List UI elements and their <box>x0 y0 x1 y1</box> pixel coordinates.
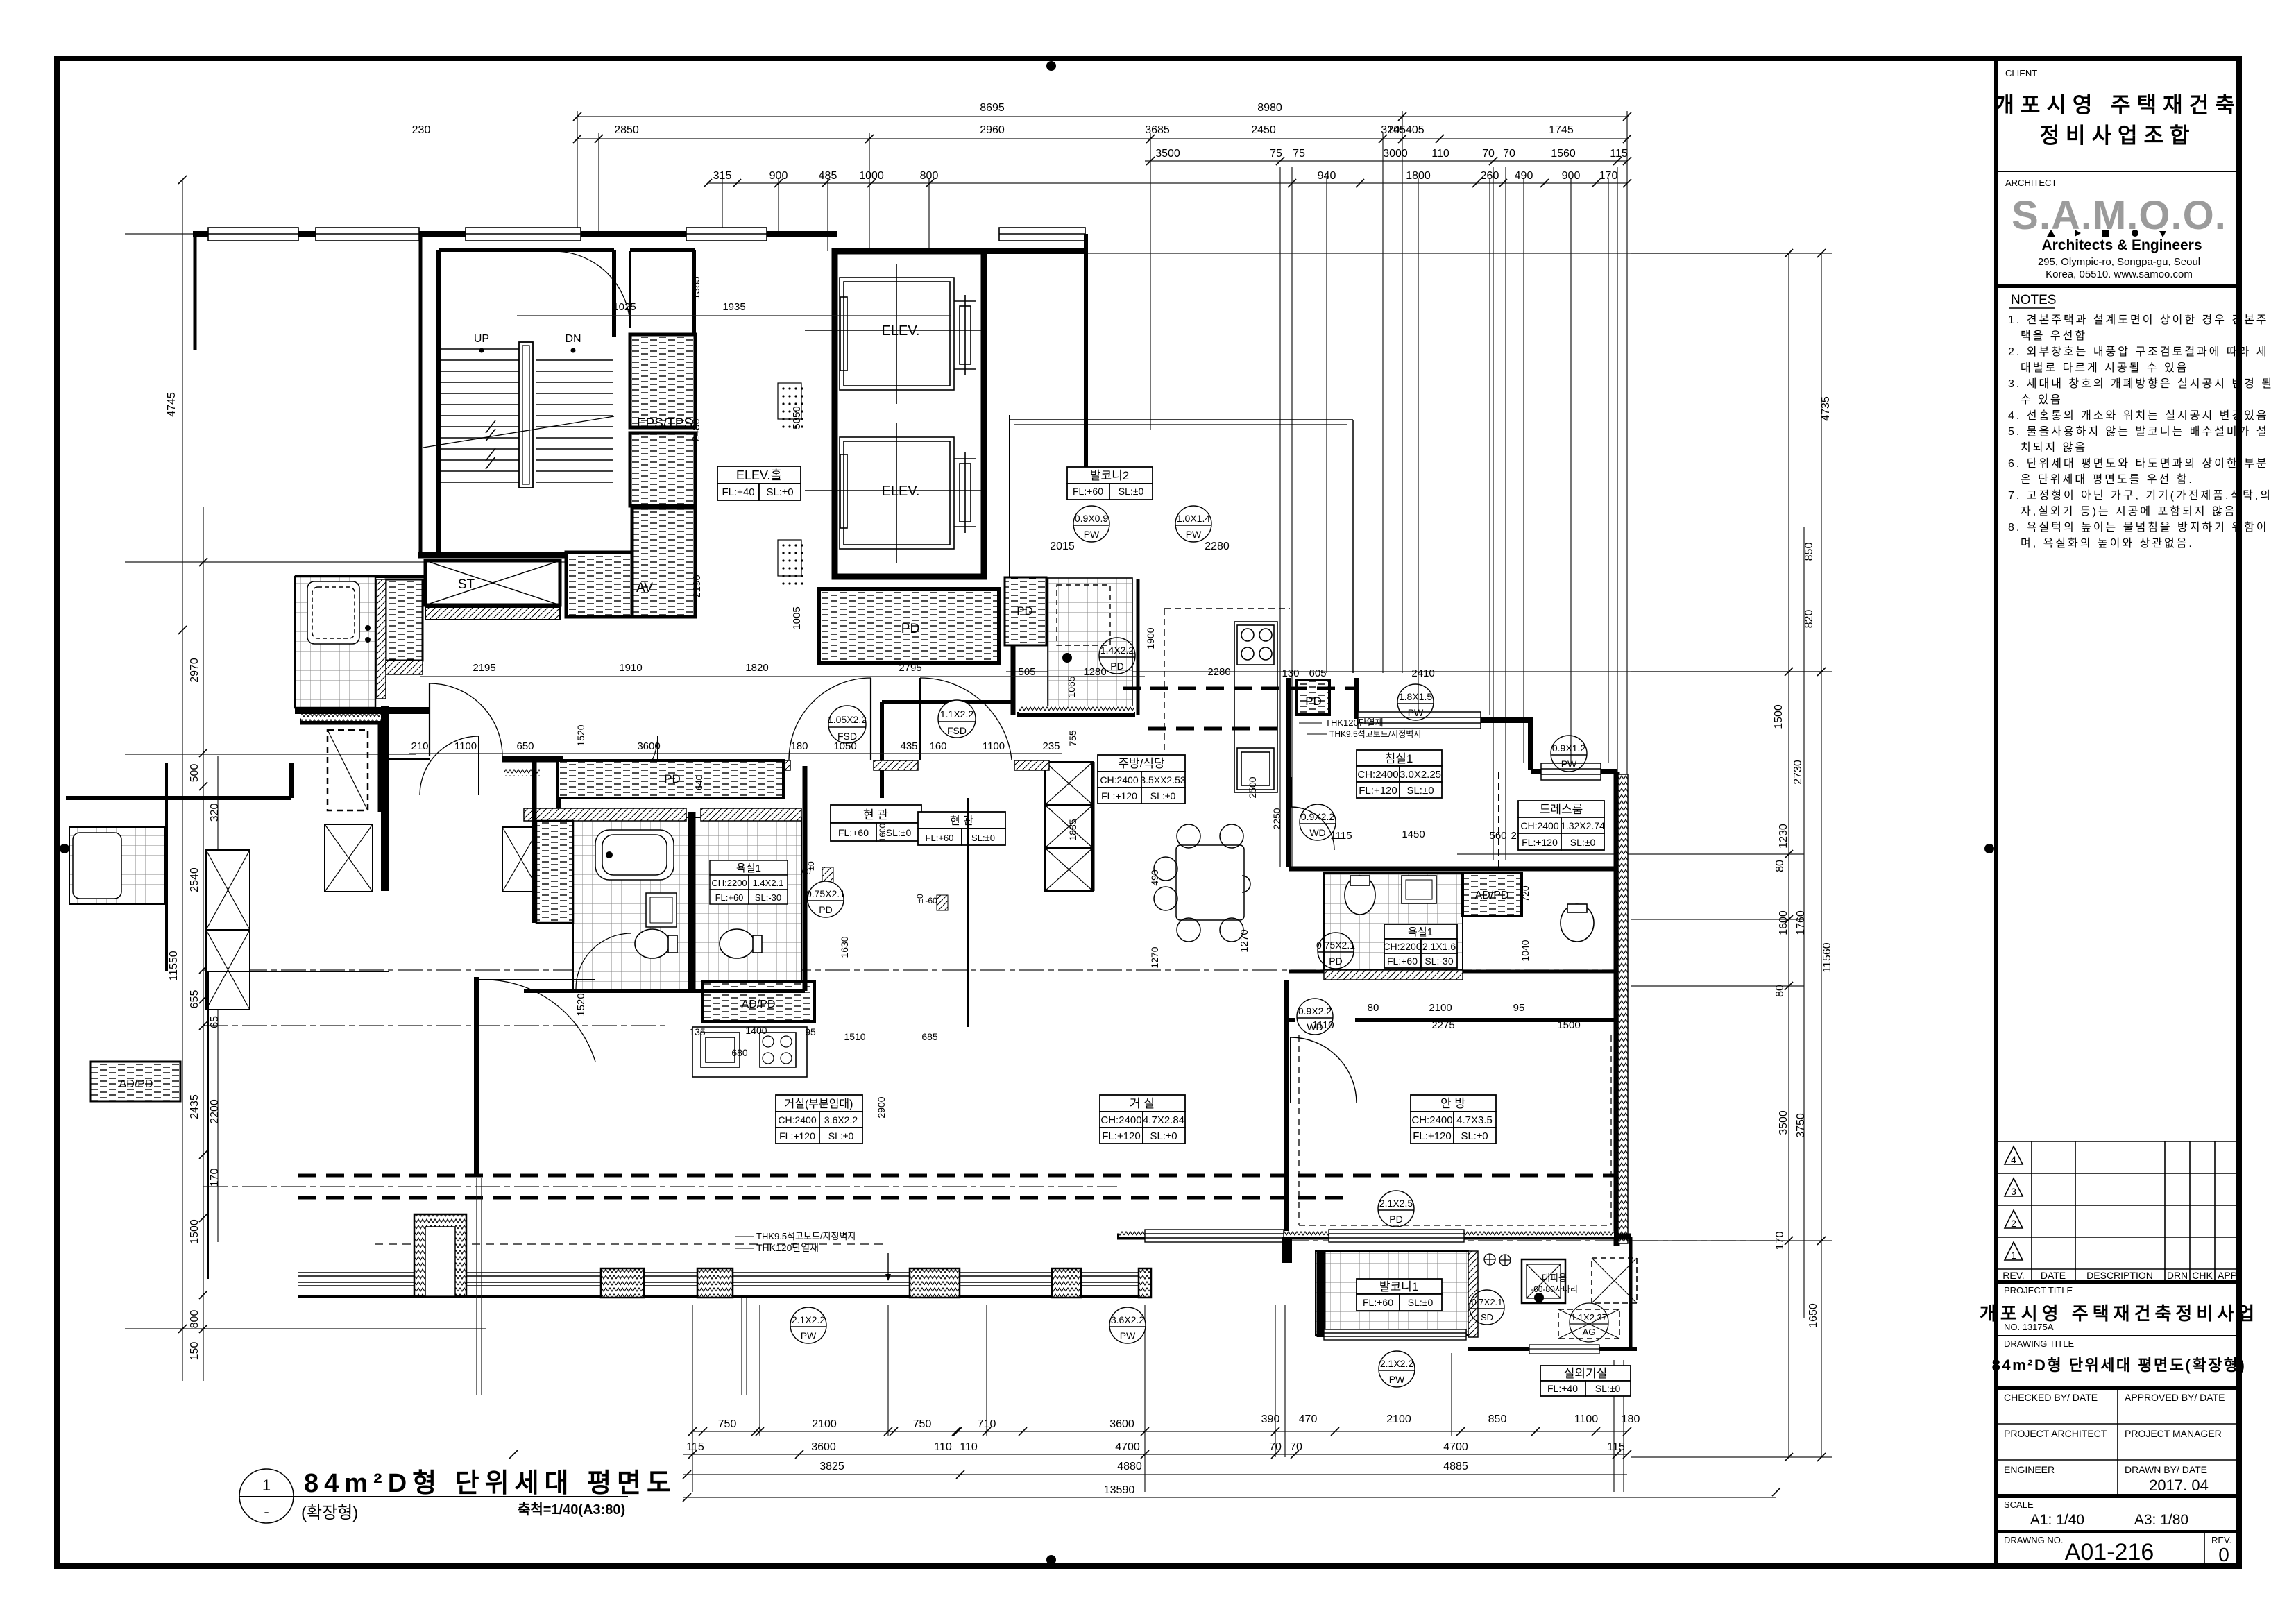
svg-text:2.1X2.5: 2.1X2.5 <box>1379 1198 1413 1209</box>
svg-text:CH:2400: CH:2400 <box>1100 1114 1141 1126</box>
svg-text:ST: ST <box>458 577 475 592</box>
svg-text:SL:±0: SL:±0 <box>1119 486 1144 497</box>
svg-text:435: 435 <box>900 740 917 752</box>
svg-text:4885: 4885 <box>1443 1461 1468 1472</box>
svg-text:(확장형): (확장형) <box>301 1504 358 1522</box>
svg-text:SL:±0: SL:±0 <box>1408 1297 1434 1308</box>
svg-text:FL:+40: FL:+40 <box>1547 1383 1578 1394</box>
svg-text:720: 720 <box>1520 885 1531 902</box>
svg-text:1.4X2.2: 1.4X2.2 <box>1100 645 1134 656</box>
svg-text:650: 650 <box>516 740 534 752</box>
svg-text:6. 단위세대 평면도와 타도면과의 상이한 부분: 6. 단위세대 평면도와 타도면과의 상이한 부분 <box>2008 457 2269 470</box>
svg-text:210: 210 <box>411 740 428 752</box>
svg-text:900: 900 <box>1562 170 1581 182</box>
svg-text:11560: 11560 <box>1821 942 1833 972</box>
svg-text:0: 0 <box>2218 1544 2229 1565</box>
svg-text:850: 850 <box>1803 543 1815 561</box>
svg-text:PW: PW <box>801 1330 817 1341</box>
svg-text:SL:±0: SL:±0 <box>1570 837 1596 848</box>
svg-text:CH:2400: CH:2400 <box>1411 1114 1452 1126</box>
svg-text:ELEV.홀: ELEV.홀 <box>736 468 782 482</box>
svg-text:1600: 1600 <box>1778 910 1789 935</box>
svg-text:2970: 2970 <box>189 658 201 683</box>
svg-text:거실(부분임대): 거실(부분임대) <box>785 1098 853 1110</box>
svg-text:1900: 1900 <box>1145 627 1156 649</box>
svg-text:1115: 1115 <box>1330 830 1352 842</box>
svg-text:260: 260 <box>1481 170 1499 182</box>
svg-text:PROJECT TITLE: PROJECT TITLE <box>2004 1285 2073 1295</box>
svg-text:실외기실: 실외기실 <box>1564 1367 1608 1380</box>
svg-text:PD: PD <box>1110 661 1123 672</box>
svg-text:DRAWN BY/ DATE: DRAWN BY/ DATE <box>2125 1464 2207 1475</box>
svg-text:치되지 않음: 치되지 않음 <box>2021 441 2087 454</box>
svg-text:1520: 1520 <box>575 724 586 746</box>
svg-text:2900: 2900 <box>876 1096 887 1118</box>
svg-text:CH:2400: CH:2400 <box>778 1114 816 1125</box>
svg-text:3.0X2.25: 3.0X2.25 <box>1400 769 1441 781</box>
svg-text:130: 130 <box>1282 668 1299 679</box>
svg-text:PD: PD <box>1017 604 1033 618</box>
svg-text:SL:±0: SL:±0 <box>766 486 793 498</box>
svg-text:수 있음: 수 있음 <box>2021 393 2063 406</box>
svg-text:FL:+120: FL:+120 <box>1359 785 1397 797</box>
svg-text:115: 115 <box>1610 148 1628 160</box>
svg-text:PD: PD <box>1389 1214 1402 1225</box>
svg-text:SL:±0: SL:±0 <box>1461 1130 1488 1142</box>
svg-text:2280: 2280 <box>1207 666 1230 678</box>
svg-text:800: 800 <box>189 1310 201 1329</box>
svg-text:S.A.M.O.O.: S.A.M.O.O. <box>2012 193 2227 238</box>
svg-text:2480: 2480 <box>690 418 702 441</box>
svg-text:ARCHITECT: ARCHITECT <box>2005 178 2057 188</box>
svg-text:320: 320 <box>209 804 221 822</box>
svg-text:1385: 1385 <box>690 276 702 299</box>
svg-text:4: 4 <box>2011 1154 2016 1165</box>
svg-text:75: 75 <box>1270 148 1282 160</box>
svg-text:2.1X2.2: 2.1X2.2 <box>1380 1358 1413 1369</box>
svg-text:AG: AG <box>1583 1327 1596 1337</box>
svg-text:5050: 5050 <box>791 406 803 429</box>
svg-text:FL:+60: FL:+60 <box>926 833 954 843</box>
svg-text:70: 70 <box>1290 1441 1302 1453</box>
svg-text:2190: 2190 <box>691 575 703 597</box>
svg-text:개포시영 주택재건축: 개포시영 주택재건축 <box>1994 93 2240 117</box>
svg-text:1760: 1760 <box>1795 910 1807 935</box>
svg-text:NO. 13175A: NO. 13175A <box>2004 1322 2054 1332</box>
svg-text:0.9X1.2: 0.9X1.2 <box>1552 742 1585 754</box>
svg-text:900: 900 <box>769 170 788 182</box>
svg-text:CHK: CHK <box>2192 1270 2213 1281</box>
svg-text:160: 160 <box>929 740 946 752</box>
svg-text:755: 755 <box>1067 730 1078 747</box>
svg-text:4700: 4700 <box>1443 1441 1468 1453</box>
svg-text:3: 3 <box>2011 1186 2016 1197</box>
svg-text:295, Olympic-ro, Songpa-gu, Se: 295, Olympic-ro, Songpa-gu, Seoul <box>2038 256 2200 268</box>
svg-text:SCALE: SCALE <box>2004 1499 2034 1510</box>
svg-text:940: 940 <box>1318 170 1336 182</box>
svg-text:은 단위세대 평면도를 우선 함.: 은 단위세대 평면도를 우선 함. <box>2021 473 2194 486</box>
svg-text:1000: 1000 <box>859 170 884 182</box>
svg-text:1040: 1040 <box>1520 940 1531 961</box>
svg-text:1: 1 <box>2011 1250 2016 1261</box>
svg-text:A01-216: A01-216 <box>2065 1539 2154 1565</box>
svg-text:PW: PW <box>1561 758 1577 770</box>
svg-text:CHECKED BY/ DATE: CHECKED BY/ DATE <box>2004 1392 2098 1403</box>
svg-text:PW: PW <box>1389 1374 1405 1385</box>
svg-text:2275: 2275 <box>1431 1019 1454 1031</box>
svg-text:0.75X2.1: 0.75X2.1 <box>1316 940 1355 951</box>
svg-text:0.9X2.2: 0.9X2.2 <box>1301 811 1334 822</box>
svg-text:2250: 2250 <box>1271 808 1282 829</box>
svg-text:PD: PD <box>819 904 832 915</box>
svg-text:1.32X2.74: 1.32X2.74 <box>1561 820 1605 831</box>
svg-text:PD: PD <box>664 772 681 785</box>
svg-text:750: 750 <box>718 1418 737 1430</box>
svg-text:PD: PD <box>1305 695 1322 708</box>
svg-text:EPS/TPS: EPS/TPS <box>637 416 692 431</box>
svg-text:며, 욕실화의 높이와 상관없음.: 며, 욕실화의 높이와 상관없음. <box>2021 537 2194 550</box>
svg-text:3000: 3000 <box>1383 148 1408 160</box>
svg-text:1.8X1.5: 1.8X1.5 <box>1399 691 1432 702</box>
svg-text:2730: 2730 <box>1792 760 1804 785</box>
svg-text:DN: DN <box>565 333 581 345</box>
svg-text:발코니2: 발코니2 <box>1090 469 1129 482</box>
svg-text:110: 110 <box>934 1441 952 1453</box>
svg-text:3. 세대내 창호의 개폐방향은 실시공시 변경 될: 3. 세대내 창호의 개폐방향은 실시공시 변경 될 <box>2008 377 2274 390</box>
svg-text:SL:±0: SL:±0 <box>971 833 995 843</box>
svg-text:1100: 1100 <box>983 740 1005 752</box>
svg-text:CH:2200: CH:2200 <box>1383 941 1421 952</box>
svg-text:1100: 1100 <box>454 740 477 752</box>
svg-text:750: 750 <box>913 1418 932 1430</box>
svg-text:3145: 3145 <box>1381 124 1406 136</box>
svg-text:1.4X2.1: 1.4X2.1 <box>753 878 784 888</box>
svg-text:DRAWING TITLE: DRAWING TITLE <box>2004 1339 2074 1349</box>
svg-text:0.75X2.1: 0.75X2.1 <box>806 888 845 899</box>
svg-text:1910: 1910 <box>619 662 642 674</box>
svg-text:8980: 8980 <box>1257 102 1282 114</box>
svg-text:AD/PD: AD/PD <box>1475 890 1509 901</box>
svg-text:PW: PW <box>1120 1330 1136 1341</box>
svg-text:CH:2400: CH:2400 <box>1357 769 1398 781</box>
svg-text:SL:±0: SL:±0 <box>886 827 912 838</box>
svg-text:640: 640 <box>694 775 704 790</box>
svg-text:SL:-30: SL:-30 <box>755 892 781 903</box>
svg-text:PROJECT ARCHITECT: PROJECT ARCHITECT <box>2004 1428 2107 1439</box>
svg-text:현 관: 현 관 <box>950 815 973 827</box>
svg-text:2: 2 <box>2011 1218 2016 1229</box>
svg-text:850: 850 <box>1488 1413 1507 1425</box>
svg-text:235: 235 <box>1042 740 1060 752</box>
svg-text:2.1X1.6: 2.1X1.6 <box>1422 941 1456 952</box>
svg-text:PW: PW <box>1084 529 1100 540</box>
svg-text:WD: WD <box>1309 827 1325 838</box>
svg-text:500: 500 <box>189 764 201 783</box>
svg-text:AV: AV <box>636 581 653 595</box>
svg-text:2100: 2100 <box>1386 1413 1411 1425</box>
svg-text:1065: 1065 <box>1066 676 1077 697</box>
svg-text:5. 물을사용하지 않는 발코니는 배수설비가 설: 5. 물을사용하지 않는 발코니는 배수설비가 설 <box>2008 425 2269 438</box>
svg-text:2015: 2015 <box>1050 541 1075 552</box>
svg-text:680: 680 <box>731 1047 748 1058</box>
svg-text:4880: 4880 <box>1117 1461 1142 1472</box>
svg-text:70: 70 <box>1482 148 1495 160</box>
svg-text:욕실1: 욕실1 <box>736 863 761 874</box>
svg-text:FL:+60: FL:+60 <box>715 892 744 903</box>
svg-text:PD: PD <box>1329 955 1342 967</box>
svg-text:APP: APP <box>2218 1270 2237 1281</box>
svg-text:710: 710 <box>978 1418 996 1430</box>
svg-text:0.9X0.9: 0.9X0.9 <box>1075 513 1108 524</box>
svg-text:축척=1/40(A3:80): 축척=1/40(A3:80) <box>518 1502 625 1518</box>
svg-text:1: 1 <box>262 1477 271 1494</box>
svg-text:1885: 1885 <box>1067 819 1078 840</box>
svg-text:1450: 1450 <box>1402 829 1425 840</box>
svg-text:3.6X2.2: 3.6X2.2 <box>824 1114 858 1125</box>
svg-text:FL:+60: FL:+60 <box>1073 486 1103 497</box>
svg-text:SL:-30: SL:-30 <box>1425 955 1453 967</box>
svg-text:485: 485 <box>819 170 837 182</box>
svg-text:FSD: FSD <box>947 725 967 736</box>
svg-text:115: 115 <box>1607 1441 1625 1453</box>
svg-text:2. 외부창호는 내풍압 구조검토결과에 따라 세: 2. 외부창호는 내풍압 구조검토결과에 따라 세 <box>2008 346 2269 358</box>
svg-text:2850: 2850 <box>614 124 639 136</box>
svg-text:1110: 1110 <box>1312 1019 1334 1031</box>
svg-text:800: 800 <box>920 170 939 182</box>
svg-text:2450: 2450 <box>1251 124 1276 136</box>
svg-text:7. 고정형이 아닌 가구, 기기(가전제품,식탁,의: 7. 고정형이 아닌 가구, 기기(가전제품,식탁,의 <box>2008 489 2272 502</box>
svg-text:THK120단열재: THK120단열재 <box>1325 717 1384 728</box>
svg-text:84m²D형 단위세대 평면도: 84m²D형 단위세대 평면도 <box>304 1469 677 1498</box>
svg-text:택을 우선함: 택을 우선함 <box>2021 330 2087 342</box>
svg-text:CH:2400: CH:2400 <box>1100 774 1138 785</box>
svg-text:95: 95 <box>1513 1002 1525 1014</box>
svg-text:DESCRIPTION: DESCRIPTION <box>2086 1270 2153 1281</box>
svg-text:1500: 1500 <box>1773 704 1785 729</box>
svg-text:드레스룸: 드레스룸 <box>1540 803 1583 816</box>
svg-text:CH:2200: CH:2200 <box>711 878 747 888</box>
svg-text:SL:±0: SL:±0 <box>1150 790 1176 801</box>
svg-text:65: 65 <box>209 1016 221 1028</box>
svg-text:2960: 2960 <box>980 124 1005 136</box>
svg-text:ENGINEER: ENGINEER <box>2004 1464 2055 1475</box>
svg-text:490: 490 <box>1515 170 1533 182</box>
svg-text:욕실1: 욕실1 <box>1408 926 1433 938</box>
svg-text:110: 110 <box>1431 148 1449 160</box>
svg-text:침실1: 침실1 <box>1385 752 1413 765</box>
svg-text:2500: 2500 <box>1247 776 1258 798</box>
svg-text:80: 80 <box>1368 1002 1379 1014</box>
svg-text:3.6X2.2: 3.6X2.2 <box>1111 1314 1144 1325</box>
svg-text:REV.: REV. <box>2002 1270 2024 1281</box>
svg-text:8. 욕실턱의 높이는 물넘침을 방지하기 위함이: 8. 욕실턱의 높이는 물넘침을 방지하기 위함이 <box>2008 521 2269 534</box>
svg-text:FL:+120: FL:+120 <box>1101 790 1137 801</box>
svg-text:대별로 다르게 시공될 수 있음: 대별로 다르게 시공될 수 있음 <box>2021 362 2188 374</box>
svg-text:1270: 1270 <box>1149 946 1160 968</box>
svg-text:A3: 1/80: A3: 1/80 <box>2134 1512 2188 1528</box>
svg-text:1230: 1230 <box>1778 824 1789 849</box>
svg-text:대피용: 대피용 <box>1542 1273 1567 1283</box>
svg-text:2795: 2795 <box>899 662 921 674</box>
svg-text:1270: 1270 <box>1239 929 1250 952</box>
svg-text:490: 490 <box>1149 869 1160 886</box>
svg-text:390: 390 <box>1261 1413 1280 1425</box>
svg-text:AD/PD: AD/PD <box>742 999 776 1010</box>
svg-text:4745: 4745 <box>166 392 178 417</box>
svg-text:1650: 1650 <box>1808 1303 1819 1328</box>
svg-text:FL:+40: FL:+40 <box>722 486 754 498</box>
svg-text:SL:±0: SL:±0 <box>1595 1383 1621 1394</box>
svg-text:0.7X2.1: 0.7X2.1 <box>1472 1297 1503 1307</box>
svg-text:84m²D형 단위세대 평면도(확장형): 84m²D형 단위세대 평면도(확장형) <box>1992 1357 2247 1374</box>
svg-text:1630: 1630 <box>839 936 850 958</box>
svg-text:FL:+120: FL:+120 <box>1413 1130 1451 1142</box>
svg-text:2280: 2280 <box>1205 541 1230 552</box>
svg-text:2200: 2200 <box>209 1099 221 1124</box>
svg-text:안 방: 안 방 <box>1440 1097 1465 1110</box>
svg-text:THK9.5석고보드/지정벽지: THK9.5석고보드/지정벽지 <box>1329 729 1421 739</box>
svg-text:PD: PD <box>901 622 919 636</box>
svg-text:1400: 1400 <box>745 1025 767 1036</box>
svg-text:2540: 2540 <box>189 867 201 892</box>
svg-text:1500: 1500 <box>1557 1019 1580 1031</box>
svg-text:230: 230 <box>412 124 431 136</box>
svg-text:거 실: 거 실 <box>1130 1097 1155 1110</box>
svg-text:SL:±0: SL:±0 <box>1406 785 1434 797</box>
svg-text:1025: 1025 <box>613 301 636 313</box>
svg-text:70: 70 <box>1269 1441 1282 1453</box>
svg-text:95: 95 <box>805 1026 816 1037</box>
svg-text:PW: PW <box>1408 707 1424 718</box>
svg-text:ELEV.: ELEV. <box>882 323 920 339</box>
svg-text:4700: 4700 <box>1115 1441 1140 1453</box>
svg-text:THK9.5석고보드/지정벽지: THK9.5석고보드/지정벽지 <box>756 1231 856 1241</box>
svg-text:A1: 1/40: A1: 1/40 <box>2030 1512 2084 1528</box>
svg-text:180: 180 <box>1622 1413 1640 1425</box>
svg-text:-: - <box>264 1503 269 1520</box>
svg-text:1. 견본주택과 설계도면이 상이한 경우 견본주: 1. 견본주택과 설계도면이 상이한 경우 견본주 <box>2008 314 2269 326</box>
svg-text:13590: 13590 <box>1104 1484 1135 1496</box>
svg-text:-60-80사다리: -60-80사다리 <box>1531 1284 1578 1294</box>
svg-text:605: 605 <box>1309 668 1326 679</box>
svg-text:FL:+60: FL:+60 <box>1387 955 1418 967</box>
svg-text:655: 655 <box>189 990 201 1009</box>
svg-text:주방/식당: 주방/식당 <box>1118 757 1165 770</box>
svg-text:1100: 1100 <box>1574 1413 1599 1425</box>
svg-text:발코니1: 발코니1 <box>1379 1280 1418 1293</box>
svg-text:FL:+60: FL:+60 <box>1363 1297 1393 1308</box>
svg-text:11550: 11550 <box>168 951 180 980</box>
svg-text:3500: 3500 <box>1778 1110 1789 1135</box>
svg-text:현 관: 현 관 <box>863 808 888 822</box>
svg-text:3750: 3750 <box>1795 1113 1807 1138</box>
svg-text:170: 170 <box>1599 170 1618 182</box>
svg-text:FL:+60: FL:+60 <box>838 827 869 838</box>
svg-text:1500: 1500 <box>189 1219 201 1244</box>
svg-text:1.1X2.2: 1.1X2.2 <box>940 708 973 720</box>
svg-text:0.9X2.2: 0.9X2.2 <box>1298 1005 1332 1017</box>
svg-text:3600: 3600 <box>1109 1418 1134 1430</box>
svg-text:2410: 2410 <box>1411 668 1434 679</box>
svg-text:75: 75 <box>1293 148 1305 160</box>
svg-text:80: 80 <box>1774 860 1786 872</box>
svg-text:CH:2400: CH:2400 <box>1520 820 1558 831</box>
svg-text:1600: 1600 <box>878 823 887 842</box>
svg-text:4.7X2.84: 4.7X2.84 <box>1143 1114 1184 1126</box>
svg-text:1745: 1745 <box>1549 124 1574 136</box>
svg-text:Korea, 05510. www.samoo.com: Korea, 05510. www.samoo.com <box>2046 269 2193 280</box>
svg-text:685: 685 <box>921 1031 938 1042</box>
svg-text:1935: 1935 <box>722 301 745 313</box>
svg-text:1.1X2.37: 1.1X2.37 <box>1571 1312 1607 1323</box>
svg-text:1.0X1.4: 1.0X1.4 <box>1177 513 1210 524</box>
svg-text:135: 135 <box>689 1026 706 1037</box>
svg-text:개포시영 주택재건축정비사업: 개포시영 주택재건축정비사업 <box>1980 1303 2259 1324</box>
svg-text:FL:+120: FL:+120 <box>1522 837 1558 848</box>
svg-text:170: 170 <box>209 1169 221 1187</box>
svg-text:SL:±0: SL:±0 <box>828 1130 854 1141</box>
svg-text:FL:+120: FL:+120 <box>1102 1130 1140 1142</box>
svg-text:180: 180 <box>790 740 808 752</box>
svg-text:4735: 4735 <box>1820 396 1832 421</box>
svg-text:150: 150 <box>189 1342 201 1361</box>
svg-text:PROJECT MANAGER: PROJECT MANAGER <box>2125 1428 2222 1439</box>
svg-text:DATE: DATE <box>2041 1270 2066 1281</box>
svg-text:1820: 1820 <box>745 662 768 674</box>
svg-text:1510: 1510 <box>844 1031 865 1042</box>
svg-text:APPROVED BY/ DATE: APPROVED BY/ DATE <box>2125 1392 2225 1403</box>
svg-text:80: 80 <box>1774 985 1786 997</box>
svg-text:AD/PD: AD/PD <box>119 1078 153 1090</box>
svg-text:NOTES: NOTES <box>2011 293 2056 307</box>
svg-text:4. 선홈통의 개소와 위치는 실시공시 변경있음: 4. 선홈통의 개소와 위치는 실시공시 변경있음 <box>2008 409 2269 422</box>
svg-text:3600: 3600 <box>811 1441 836 1453</box>
svg-text:UP: UP <box>474 333 489 345</box>
svg-text:1005: 1005 <box>791 606 803 629</box>
svg-text:SL:±0: SL:±0 <box>1150 1130 1177 1142</box>
svg-text:CLIENT: CLIENT <box>2005 68 2037 78</box>
svg-text:자,실외기 등)는 시공에 포함되지 않음: 자,실외기 등)는 시공에 포함되지 않음 <box>2021 505 2236 518</box>
svg-text:3685: 3685 <box>1145 124 1170 136</box>
svg-text:1800: 1800 <box>1406 170 1431 182</box>
svg-text:-60: -60 <box>925 896 937 906</box>
svg-text:DRAWNG NO.: DRAWNG NO. <box>2004 1535 2063 1545</box>
svg-text:3500: 3500 <box>1155 148 1180 160</box>
svg-text:70: 70 <box>1503 148 1515 160</box>
svg-text:110: 110 <box>960 1441 978 1453</box>
svg-text:2100: 2100 <box>812 1418 837 1430</box>
svg-text:2435: 2435 <box>189 1094 201 1119</box>
svg-text:8695: 8695 <box>980 102 1005 114</box>
svg-text:3825: 3825 <box>819 1461 844 1472</box>
svg-text:2.1X2.2: 2.1X2.2 <box>792 1314 825 1325</box>
svg-text:DRN: DRN <box>2167 1270 2188 1281</box>
svg-text:2017. 04: 2017. 04 <box>2149 1477 2209 1494</box>
svg-text:FL:+120: FL:+120 <box>779 1130 815 1141</box>
svg-text:820: 820 <box>1803 610 1815 629</box>
svg-text:PW: PW <box>1186 529 1202 540</box>
svg-text:1520: 1520 <box>575 993 587 1016</box>
svg-text:±0: ±0 <box>915 894 925 903</box>
svg-text:470: 470 <box>1299 1413 1318 1425</box>
svg-text:315: 315 <box>713 170 732 182</box>
svg-text:1.05X2.2: 1.05X2.2 <box>828 714 867 725</box>
svg-text:ELEV.: ELEV. <box>882 484 920 499</box>
svg-text:1560: 1560 <box>1551 148 1576 160</box>
svg-text:2195: 2195 <box>473 662 495 674</box>
svg-text:3.5XX2.53: 3.5XX2.53 <box>1140 774 1186 785</box>
svg-text:4.7X3.5: 4.7X3.5 <box>1456 1114 1493 1126</box>
